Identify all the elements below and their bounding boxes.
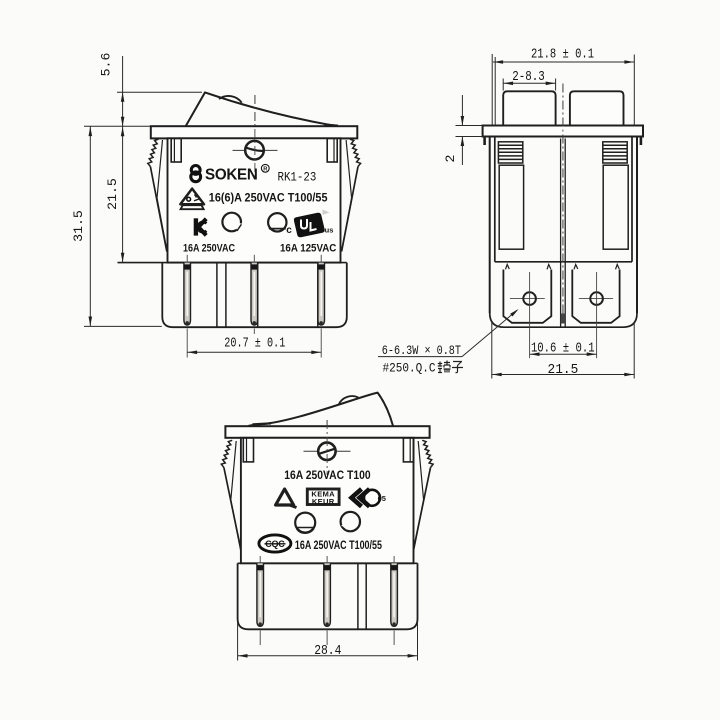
svg-text:10.6 ± 0.1: 10.6 ± 0.1 (531, 342, 595, 357)
svg-text:16A 250VAC T100: 16A 250VAC T100 (284, 469, 370, 482)
svg-text:28.4: 28.4 (314, 644, 341, 659)
svg-text:6-6.3W × 0.8T: 6-6.3W × 0.8T (382, 343, 461, 358)
svg-text:16A 250VAC T100/55: 16A 250VAC T100/55 (295, 539, 383, 552)
svg-text:16(6)A 250VAC T100/55: 16(6)A 250VAC T100/55 (209, 192, 328, 205)
svg-text:CQC: CQC (265, 539, 285, 549)
svg-text:RK1-23: RK1-23 (278, 170, 317, 185)
svg-text:SOKEN: SOKEN (205, 167, 258, 184)
svg-text:16A 250VAC: 16A 250VAC (183, 243, 235, 255)
svg-text:16A 125VAC: 16A 125VAC (280, 243, 336, 255)
svg-text:05: 05 (378, 494, 386, 503)
svg-text:21.5: 21.5 (105, 178, 120, 210)
svg-text:us: us (325, 225, 334, 234)
svg-text:5.6: 5.6 (99, 53, 114, 77)
svg-text:20.7 ± 0.1: 20.7 ± 0.1 (224, 337, 285, 352)
svg-text:21.8 ± 0.1: 21.8 ± 0.1 (531, 47, 594, 62)
svg-text:KEUR: KEUR (312, 497, 335, 506)
svg-text:2-8.3: 2-8.3 (512, 70, 545, 85)
svg-text:2: 2 (443, 155, 458, 163)
svg-text:21.5: 21.5 (548, 363, 579, 378)
svg-text:31.5: 31.5 (71, 210, 86, 242)
svg-text:c: c (286, 225, 292, 236)
svg-text:#250.Q.C: #250.Q.C (383, 361, 436, 376)
